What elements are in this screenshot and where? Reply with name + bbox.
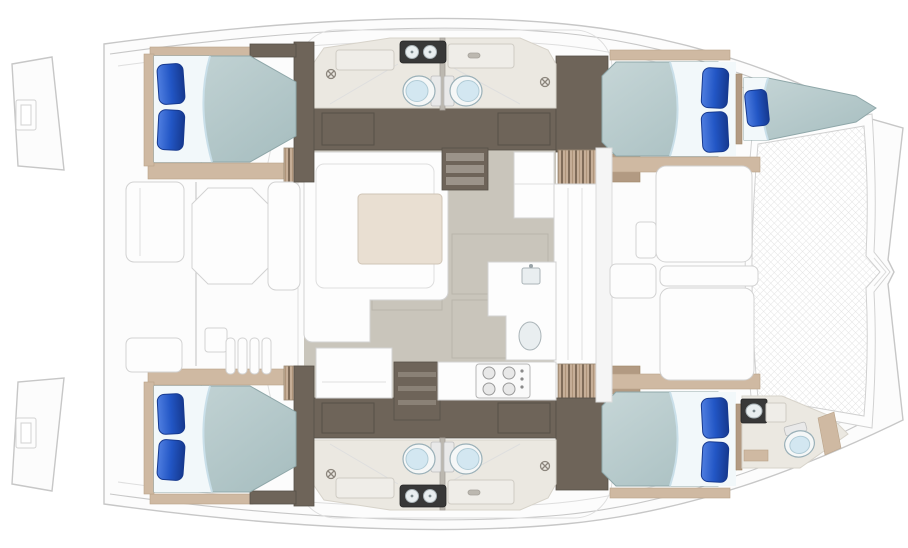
toilet-seat [457,449,479,470]
burner-icon [483,383,495,395]
drain-dot [753,410,756,413]
cockpit-trim-upper [148,163,284,179]
cabin-floor [250,44,296,57]
burner-icon [503,383,515,395]
floor-plan-image [0,0,908,548]
cockpit-aft-bench [126,338,182,372]
burner-icon [483,367,495,379]
foredeck-locker [636,222,656,258]
pillow-icon [701,111,729,152]
toilet-seat [406,81,428,102]
step-tread [446,153,484,161]
companionway-band-upper [304,108,556,150]
cabin-floor [294,42,314,182]
toilet-icon [403,442,441,474]
dark-floor [304,108,556,150]
ladder-rung [21,105,31,125]
trim-strip [610,488,730,498]
head-counter [448,480,514,504]
toilet-seat [457,81,479,102]
drain-dot [411,495,414,498]
companionway-steps [558,364,598,398]
step-tread [446,177,484,185]
bed-headboard [144,54,154,166]
step-tread [446,165,484,173]
head-counter [448,44,514,68]
galley-aft-cabinet [316,348,392,398]
seat-slat [238,338,247,374]
vanity-upper [400,41,446,63]
cockpit-table [192,188,268,284]
foredeck-side-table [610,264,656,298]
shelf [398,386,436,391]
cabin-floor [250,491,296,504]
bed-headboard [144,382,154,494]
shelf [398,400,436,405]
seat-slat [250,338,259,374]
pillow-icon [744,89,770,127]
pillow-icon [157,439,186,481]
toilet-icon [444,76,482,106]
foredeck-sunpad [660,288,754,380]
fridge-cabinet [514,152,554,218]
stove-icon [476,364,530,398]
dark-floor [556,56,608,152]
salon-steps-upper [442,148,488,190]
pillow-icon [701,67,729,108]
swim-platform-lower [12,378,64,491]
toilet-seat [406,449,428,470]
heads-lower [306,438,556,510]
pillow-icon [157,109,185,150]
toilet-icon [403,76,441,106]
drain-dot [411,51,414,54]
dark-floor [556,398,608,490]
trim-strip [150,494,253,504]
berth-divider [736,74,742,144]
cabin-floor [294,366,314,506]
head-counter [336,478,394,498]
dinette-table [358,194,442,264]
pillow-icon [701,441,729,482]
galley-sink-icon [519,322,541,350]
stove-knob [520,369,523,372]
pillow-icon [701,397,729,438]
pillow-icon [157,393,185,434]
trim-strip [610,50,730,60]
burner-icon [503,367,515,379]
side-cabinet [554,184,600,364]
foredeck-sunpad [656,166,752,262]
davit-hardware-icon [205,328,227,352]
counter-handle [468,53,480,58]
toilet-icon [444,442,482,474]
salon [304,56,640,490]
swim-platform-upper [12,57,64,170]
catamaran-floor-plan [0,0,908,548]
shelf [398,372,436,377]
cockpit-lounge-bench [126,182,184,262]
seat-slat [262,338,271,374]
drain-dot [429,51,432,54]
faucet-icon [529,264,533,268]
ladder-rung [21,423,31,443]
seat-slat [226,338,235,374]
foredeck-seat-strip [660,266,758,286]
galley-sink-icon [522,268,540,284]
stove-knob [520,385,523,388]
companionway-steps [558,150,598,184]
pillow-icon [157,63,186,105]
vanity-lower [400,485,446,507]
head-counter [336,50,394,70]
head-counter [766,403,786,422]
trampoline-mesh [752,126,880,416]
head-partition [744,450,768,461]
drain-dot [429,495,432,498]
cockpit-side-bench [268,182,300,290]
bow-area [745,114,890,428]
counter-handle [468,490,480,495]
heads-upper [306,38,556,110]
galley-shelves [394,362,440,420]
stove-knob [520,377,523,380]
